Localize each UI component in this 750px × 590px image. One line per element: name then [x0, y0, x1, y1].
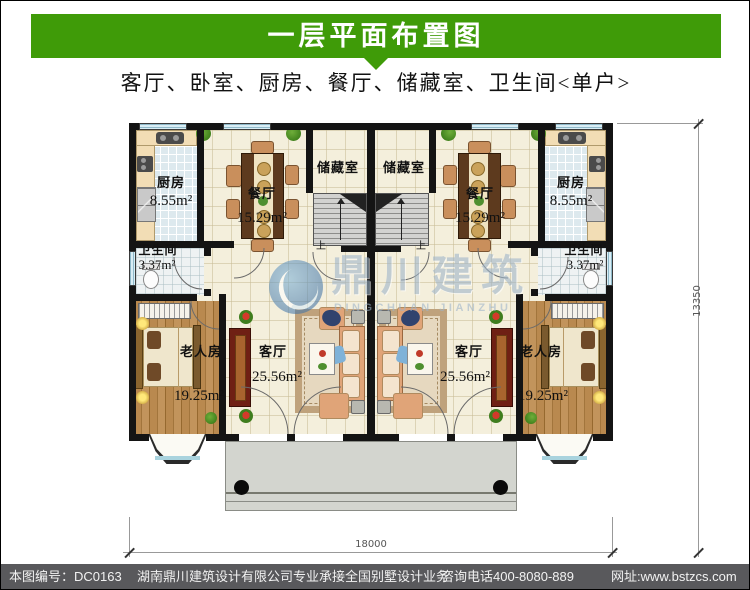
column-icon: [493, 480, 508, 495]
pillow: [147, 363, 161, 381]
burner-icon: [576, 135, 582, 141]
bedroom-wall: [219, 294, 226, 434]
bath-wall: [531, 289, 538, 296]
burner-icon: [563, 135, 569, 141]
bath-wall: [204, 241, 211, 256]
door-swing-arc: [313, 252, 341, 280]
stairs-direction-line: [401, 202, 402, 240]
chair: [500, 165, 516, 187]
window: [555, 123, 603, 130]
wall-segment: [129, 434, 149, 441]
door-swing-arc: [478, 248, 508, 278]
burner-icon: [160, 135, 166, 141]
center-party-wall: [367, 123, 371, 441]
room-area-dining: 15.29m²: [447, 211, 513, 226]
stair-stub-wall: [371, 246, 401, 252]
stairs-direction-line: [340, 202, 341, 240]
room-label-bedroom: 老人房: [177, 345, 225, 358]
bay-window-sill: [542, 456, 587, 460]
page-title: 一层平面布置图: [31, 14, 721, 58]
wall-segment: [129, 286, 136, 441]
flower-icon: [319, 350, 326, 357]
dining-chair: [443, 165, 457, 185]
sofa: [339, 326, 365, 401]
stairs-up-label: 上: [413, 242, 429, 252]
subtitle: 客厅、卧室、厨房、餐厅、储藏室、卫生间<单户>: [1, 67, 750, 97]
footer-bar: 本图编号：DC0163 湖南鼎川建筑设计有限公司专业承接全国别墅设计业务 咨询电…: [1, 564, 749, 589]
company-line: 湖南鼎川建筑设计有限公司专业承接全国别墅设计业务: [137, 564, 449, 589]
floor-plan-page: 一层平面布置图 客厅、卧室、厨房、餐厅、储藏室、卫生间<单户>: [0, 0, 750, 590]
wall-segment: [503, 434, 536, 441]
window: [471, 123, 519, 130]
pillow: [581, 331, 595, 349]
stairs-up-label: 上: [313, 242, 329, 252]
flower-icon: [318, 363, 327, 370]
wall-segment: [606, 123, 613, 251]
room-area-bedroom: 19.25m²: [169, 389, 229, 404]
end-table: [377, 310, 391, 324]
wall-segment: [206, 434, 239, 441]
header-bar: 一层平面布置图: [31, 14, 721, 58]
room-area-bathroom: 3.37m²: [129, 258, 185, 271]
porch: [225, 441, 517, 511]
door-swing-arc: [523, 301, 551, 329]
room-area-living: 25.56m²: [245, 370, 309, 385]
cooktop-icon: [589, 156, 605, 172]
room-area-bedroom: 19.25m²: [513, 389, 573, 404]
room-label-kitchen: 厨房: [147, 176, 195, 189]
dimension-line-bottom: [123, 552, 617, 553]
phone-line: 咨询电话400-8080-889: [441, 564, 574, 589]
plate-icon: [257, 224, 271, 238]
lamp-icon: [593, 317, 606, 330]
bath-wall: [531, 241, 538, 256]
room-label-storage: 储藏室: [315, 161, 361, 174]
window: [223, 123, 271, 130]
flower-pot-icon: [239, 310, 253, 324]
stove-icon: [558, 132, 586, 144]
pillow: [147, 331, 161, 349]
flower-icon: [416, 350, 423, 357]
burner-icon: [141, 165, 146, 170]
room-label-bathroom: 卫生间: [131, 244, 185, 256]
door-swing-arc: [234, 248, 264, 278]
wardrobe: [138, 303, 191, 319]
bay-window: [534, 434, 595, 464]
center-party-wall: [371, 123, 375, 441]
wall-segment: [271, 123, 371, 130]
wall-segment: [606, 286, 613, 441]
flower-pot-icon: [489, 409, 503, 423]
flower-pot-icon: [489, 310, 503, 324]
bedroom-divider: [129, 294, 197, 301]
dimension-width-label: 18000: [341, 540, 401, 550]
end-table: [377, 400, 391, 414]
room-label-living: 客厅: [447, 345, 491, 358]
wall-segment: [519, 123, 555, 130]
stairs: [375, 193, 429, 246]
wall-segment: [129, 123, 136, 251]
entry-mullion: [287, 434, 295, 441]
wall-segment: [371, 123, 471, 130]
door-swing-arc: [191, 301, 219, 329]
toilet-icon: [583, 270, 599, 289]
column-icon: [234, 480, 249, 495]
room-label-kitchen: 厨房: [547, 176, 595, 189]
stairs: [313, 193, 367, 246]
wall-segment: [371, 434, 399, 441]
window: [139, 123, 187, 130]
wall-segment: [593, 434, 613, 441]
coffee-table: [309, 343, 335, 375]
flower-pot-icon: [239, 409, 253, 423]
cooktop-icon: [137, 156, 153, 172]
lamp-icon: [136, 391, 149, 404]
storage-wall: [429, 123, 436, 193]
burner-icon: [596, 158, 601, 163]
kitchen-wall: [538, 123, 545, 241]
door-swing-arc: [401, 252, 429, 280]
room-label-bathroom: 卫生间: [557, 244, 611, 256]
website-line: 网址:www.bstzcs.com: [611, 564, 737, 589]
toilet-icon: [143, 270, 159, 289]
plate-icon: [471, 224, 485, 238]
burner-icon: [173, 135, 179, 141]
wall-segment: [187, 123, 223, 130]
stove-icon: [156, 132, 184, 144]
sofa: [377, 326, 403, 401]
pillow: [581, 363, 595, 381]
entry-door-swing-arc: [294, 387, 341, 434]
stairs-arrow-icon: [397, 198, 405, 204]
porch-step-line: [226, 492, 516, 494]
plant-icon: [205, 412, 217, 424]
bedroom-wall: [516, 294, 523, 434]
plate-icon: [257, 162, 271, 176]
end-table: [351, 400, 365, 414]
bath-wall: [204, 289, 211, 296]
room-label-dining: 餐厅: [240, 187, 284, 200]
room-area-dining: 15.29m²: [229, 211, 295, 226]
bay-window-sill: [155, 456, 200, 460]
room-label-dining: 餐厅: [458, 187, 502, 200]
sofa-cushion: [342, 330, 360, 352]
dimension-height-label: 13350: [693, 281, 703, 321]
burner-icon: [596, 165, 601, 170]
plate-icon: [471, 162, 485, 176]
storage-wall: [306, 123, 313, 193]
room-area-living: 25.56m²: [433, 370, 497, 385]
bedroom-divider: [545, 294, 613, 301]
end-table: [351, 310, 365, 324]
entry-door-swing-arc: [401, 387, 448, 434]
kitchen-wall: [197, 123, 204, 241]
room-label-living: 客厅: [251, 345, 295, 358]
plant-icon: [525, 412, 537, 424]
stair-stub-wall: [341, 246, 371, 252]
chair: [226, 165, 242, 187]
dimension-extension-line: [617, 123, 703, 124]
entry-mullion: [447, 434, 455, 441]
lamp-icon: [593, 391, 606, 404]
room-label-bedroom: 老人房: [517, 345, 565, 358]
lamp-icon: [136, 317, 149, 330]
flower-icon: [415, 363, 424, 370]
room-area-kitchen: 8.55m²: [143, 194, 199, 209]
porch-step-line: [226, 501, 516, 502]
room-area-kitchen: 8.55m²: [543, 194, 599, 209]
room-area-bathroom: 3.37m²: [557, 258, 613, 271]
stairs-arrow-icon: [337, 198, 345, 204]
room-label-storage: 储藏室: [381, 161, 427, 174]
drawing-number: 本图编号：DC0163: [9, 564, 122, 589]
dimension-line-right: [698, 119, 699, 557]
bay-window: [147, 434, 208, 464]
burner-icon: [141, 158, 146, 163]
coffee-table: [407, 343, 433, 375]
dining-chair: [285, 165, 299, 185]
